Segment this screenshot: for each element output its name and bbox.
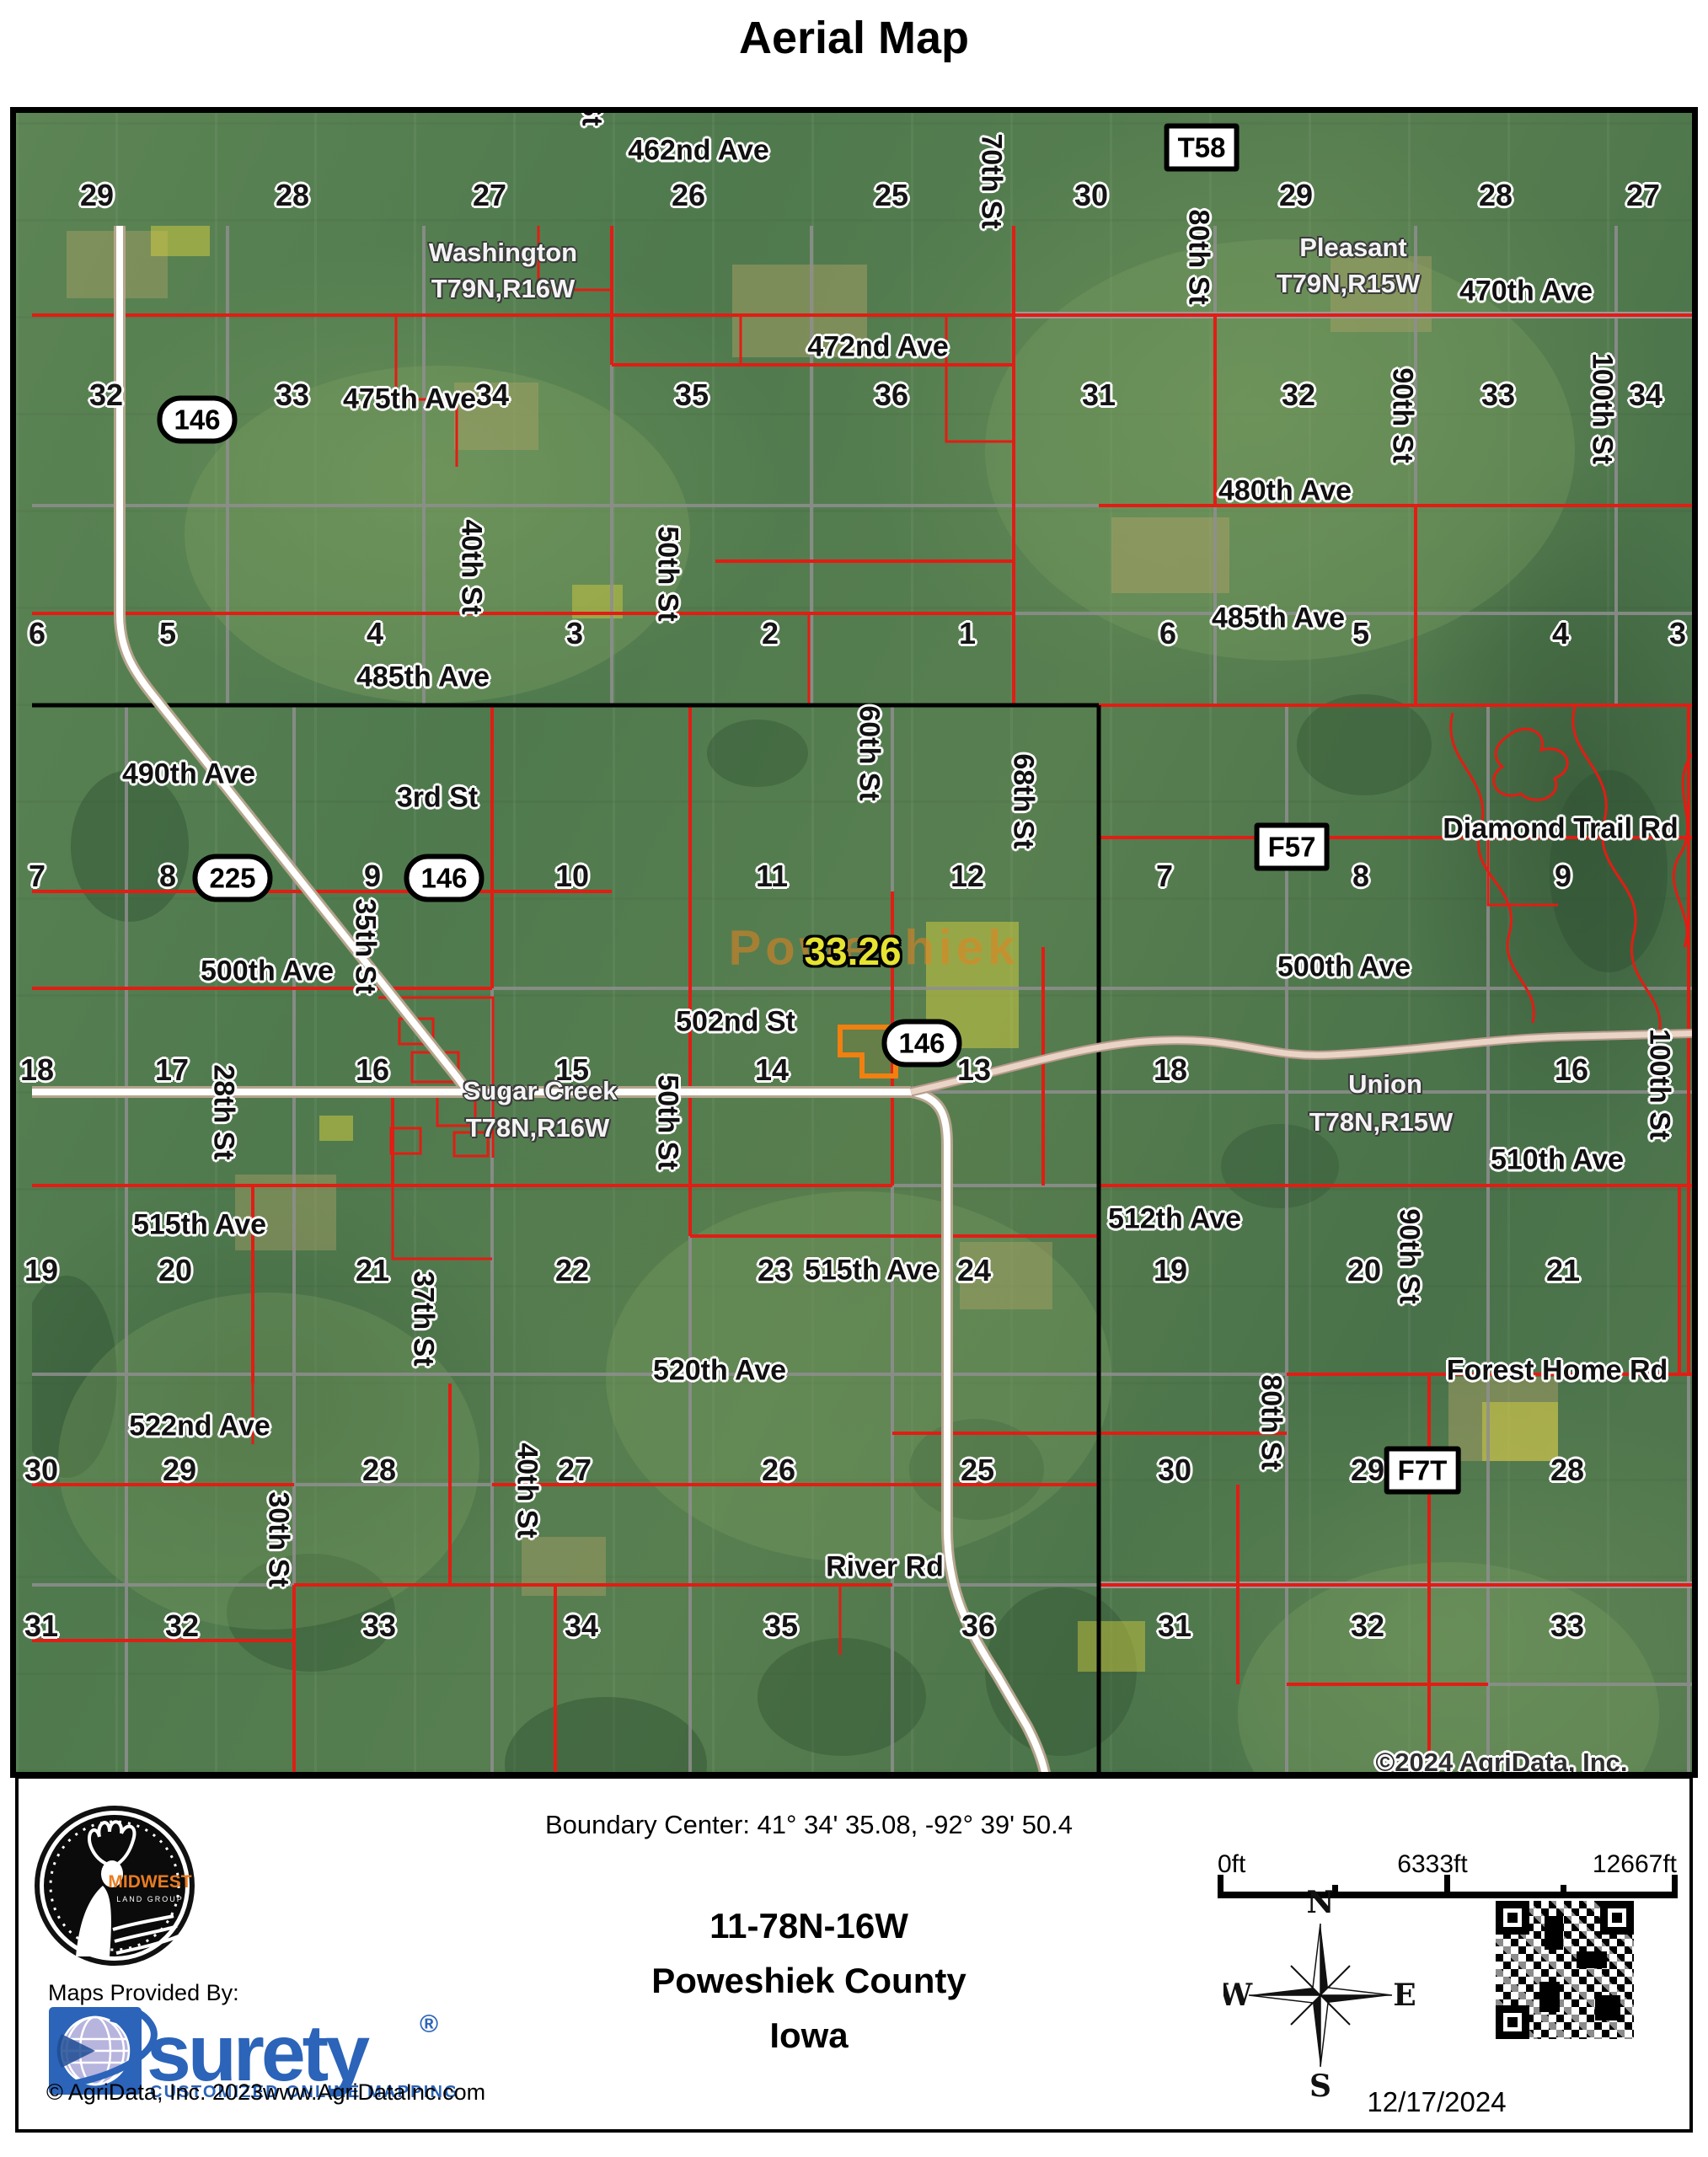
road-label: 462nd Ave — [628, 135, 769, 168]
section-number: 26 — [672, 178, 705, 213]
section-number: 28 — [1479, 178, 1513, 213]
scale-label-mid: 6333ft — [1306, 1850, 1559, 1879]
road-label-vertical: 70th St — [975, 133, 1008, 228]
qr-module-blob — [1595, 1995, 1620, 2021]
section-number: 28 — [276, 178, 309, 213]
midwest-land-group-logo: MIDWEST LAND GROUP — [32, 1803, 197, 1968]
state-label: Iowa — [303, 2015, 1314, 2056]
page-title: Aerial Map — [0, 12, 1708, 64]
road-label-vertical: 50th St — [576, 107, 608, 126]
compass-north-label: N — [1307, 1885, 1335, 1920]
qr-module-blob — [1577, 1951, 1607, 1968]
terrain-patches — [32, 226, 1668, 1778]
section-number: 27 — [1626, 178, 1660, 213]
map-artwork — [32, 226, 1698, 1778]
section-number: 30 — [1074, 178, 1108, 213]
section-number: 29 — [80, 178, 114, 213]
qr-code — [1496, 1901, 1634, 2039]
scale-tick — [1218, 1875, 1223, 1898]
agridata-copyright: © AgriData, Inc. 2023 — [46, 2079, 263, 2106]
route-shield: T58 — [1165, 124, 1240, 172]
agridata-url: www.AgriDataInc.com — [263, 2079, 485, 2106]
compass-rose: N S W E — [1223, 1877, 1417, 2103]
compass-east-label: E — [1393, 1978, 1416, 2013]
diamond-trail-road — [911, 1033, 1698, 1092]
county-label: Poweshiek County — [303, 1961, 1314, 2001]
section-number: 29 — [1279, 178, 1313, 213]
scale-label-end: 12667ft — [1567, 1850, 1677, 1879]
scale-tick — [1672, 1875, 1678, 1898]
road-label: 460th Ave — [1273, 107, 1406, 109]
midwest-wordmark: MIDWEST — [108, 1872, 191, 1892]
highlighted-parcel-outline — [840, 1027, 896, 1076]
scale-tick — [1444, 1875, 1450, 1898]
section-number: 27 — [473, 178, 506, 213]
qr-finder-icon — [1496, 2005, 1529, 2039]
land-group-wordmark: LAND GROUP — [116, 1895, 184, 1903]
compass-west-label: W — [1223, 1978, 1253, 2013]
map-date: 12/17/2024 — [1298, 2086, 1576, 2118]
aerial-map-page: { "title": "Aerial Map", "colors": { "ac… — [0, 0, 1708, 2157]
aerial-map: 2021222324192021222928272625302928273233… — [10, 107, 1698, 1778]
qr-module-blob — [1539, 1982, 1560, 2012]
qr-module-blob — [1545, 1916, 1563, 1950]
scale-tick-small — [1561, 1885, 1566, 1898]
road-label: 460th Ave — [302, 107, 435, 113]
compass-cardinal-points — [1249, 1924, 1392, 2067]
township-range-section-label: 11-78N-16W — [303, 1906, 1314, 1946]
section-number: 25 — [875, 178, 908, 213]
boundary-center-label: Boundary Center: 41° 34' 35.08, -92° 39'… — [345, 1810, 1272, 1840]
qr-finder-icon — [1496, 1901, 1529, 1935]
qr-finder-icon — [1600, 1901, 1634, 1935]
